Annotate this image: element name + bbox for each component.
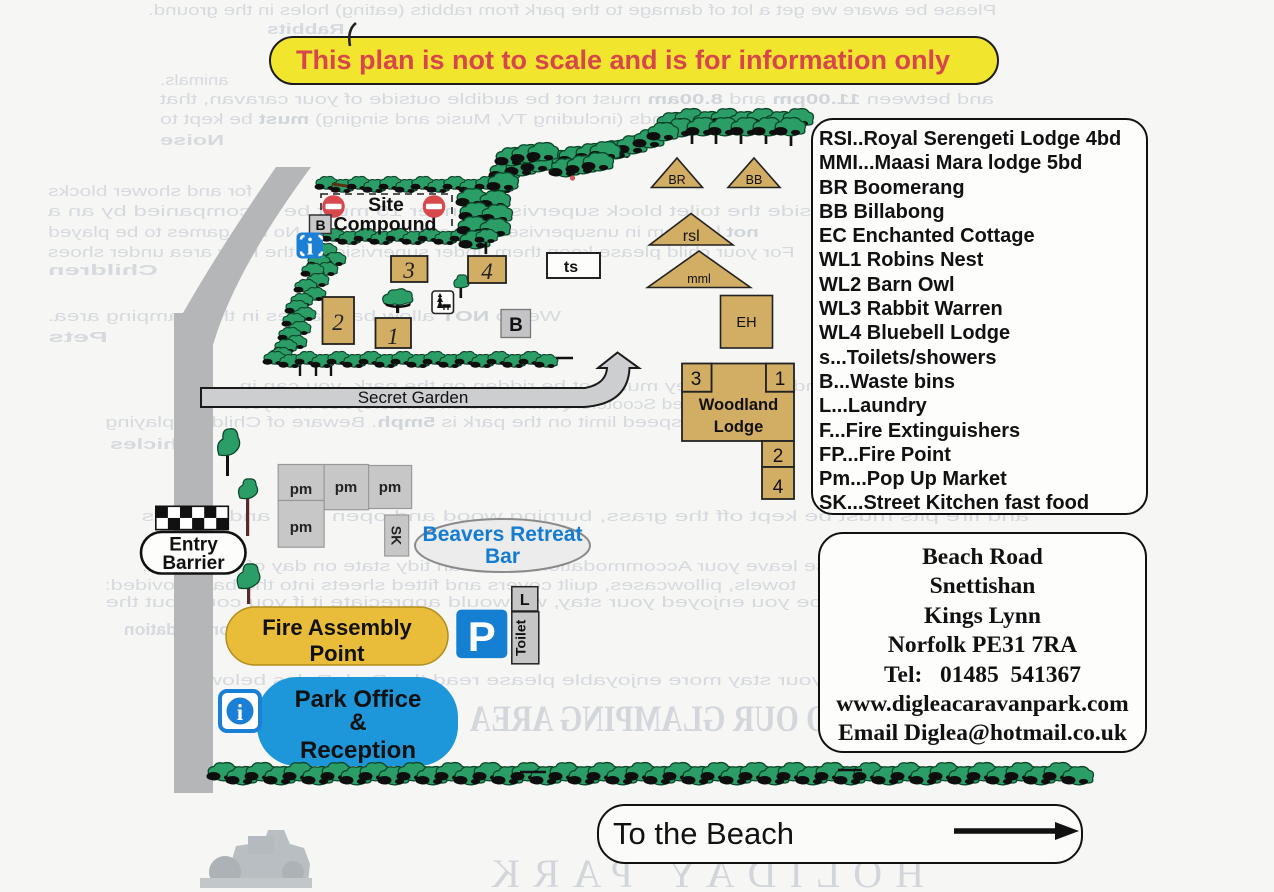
svg-text:1: 1 — [775, 369, 786, 390]
svg-text:pm: pm — [290, 519, 313, 536]
svg-text:Compound: Compound — [334, 214, 437, 236]
svg-text:Bar: Bar — [485, 545, 520, 568]
svg-text:Reception: Reception — [300, 737, 416, 764]
svg-text:2: 2 — [773, 446, 784, 467]
svg-text:Beavers Retreat: Beavers Retreat — [423, 523, 583, 546]
svg-text:B: B — [509, 315, 523, 336]
svg-text:i: i — [237, 700, 244, 725]
svg-text:pm: pm — [379, 479, 402, 496]
svg-text:mml: mml — [687, 272, 711, 286]
svg-text:3: 3 — [402, 258, 415, 283]
svg-text:BR: BR — [668, 173, 685, 187]
svg-text:i: i — [307, 235, 314, 261]
svg-text:EH: EH — [736, 315, 756, 331]
svg-text:Point: Point — [310, 641, 366, 666]
svg-text:Lodge: Lodge — [714, 418, 764, 436]
svg-text:4: 4 — [481, 259, 493, 284]
svg-text:Toilet: Toilet — [512, 619, 528, 656]
svg-text:Barrier: Barrier — [162, 553, 225, 574]
svg-text:ts: ts — [564, 259, 578, 276]
svg-text:SK: SK — [389, 526, 405, 545]
svg-text:Woodland: Woodland — [699, 396, 778, 414]
svg-text:1: 1 — [387, 324, 399, 349]
svg-text:&: & — [349, 709, 366, 736]
svg-text:4: 4 — [773, 477, 784, 498]
svg-text:P: P — [468, 613, 496, 660]
svg-text:rsl: rsl — [683, 228, 700, 245]
svg-text:Fire Assembly: Fire Assembly — [262, 615, 412, 640]
svg-text:L: L — [520, 592, 530, 609]
svg-text:pm: pm — [335, 479, 358, 496]
svg-text:2: 2 — [332, 310, 344, 335]
svg-text:pm: pm — [290, 481, 313, 498]
svg-text:B: B — [315, 217, 325, 233]
svg-text:Secret Garden: Secret Garden — [358, 388, 469, 407]
svg-text:BB: BB — [746, 173, 763, 187]
svg-text:3: 3 — [691, 369, 702, 390]
